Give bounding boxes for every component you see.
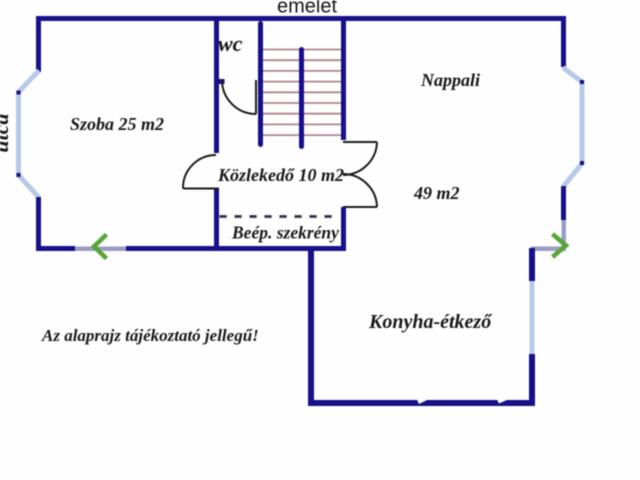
svg-text:emelet: emelet — [277, 0, 337, 18]
svg-text:Közlekedő 10 m2: Közlekedő 10 m2 — [217, 165, 344, 185]
svg-text:Szoba 25 m2: Szoba 25 m2 — [70, 114, 164, 134]
svg-text:49 m2: 49 m2 — [413, 183, 460, 203]
svg-text:Konyha-étkező: Konyha-étkező — [368, 311, 493, 333]
svg-text:wc: wc — [218, 31, 243, 56]
svg-text:Nappali: Nappali — [420, 70, 480, 90]
svg-text:utca: utca — [0, 113, 13, 152]
svg-text:Beép. szekrény: Beép. szekrény — [231, 223, 339, 243]
svg-text:Az alaprajz tájékoztató jelleg: Az alaprajz tájékoztató jellegű! — [41, 326, 259, 345]
